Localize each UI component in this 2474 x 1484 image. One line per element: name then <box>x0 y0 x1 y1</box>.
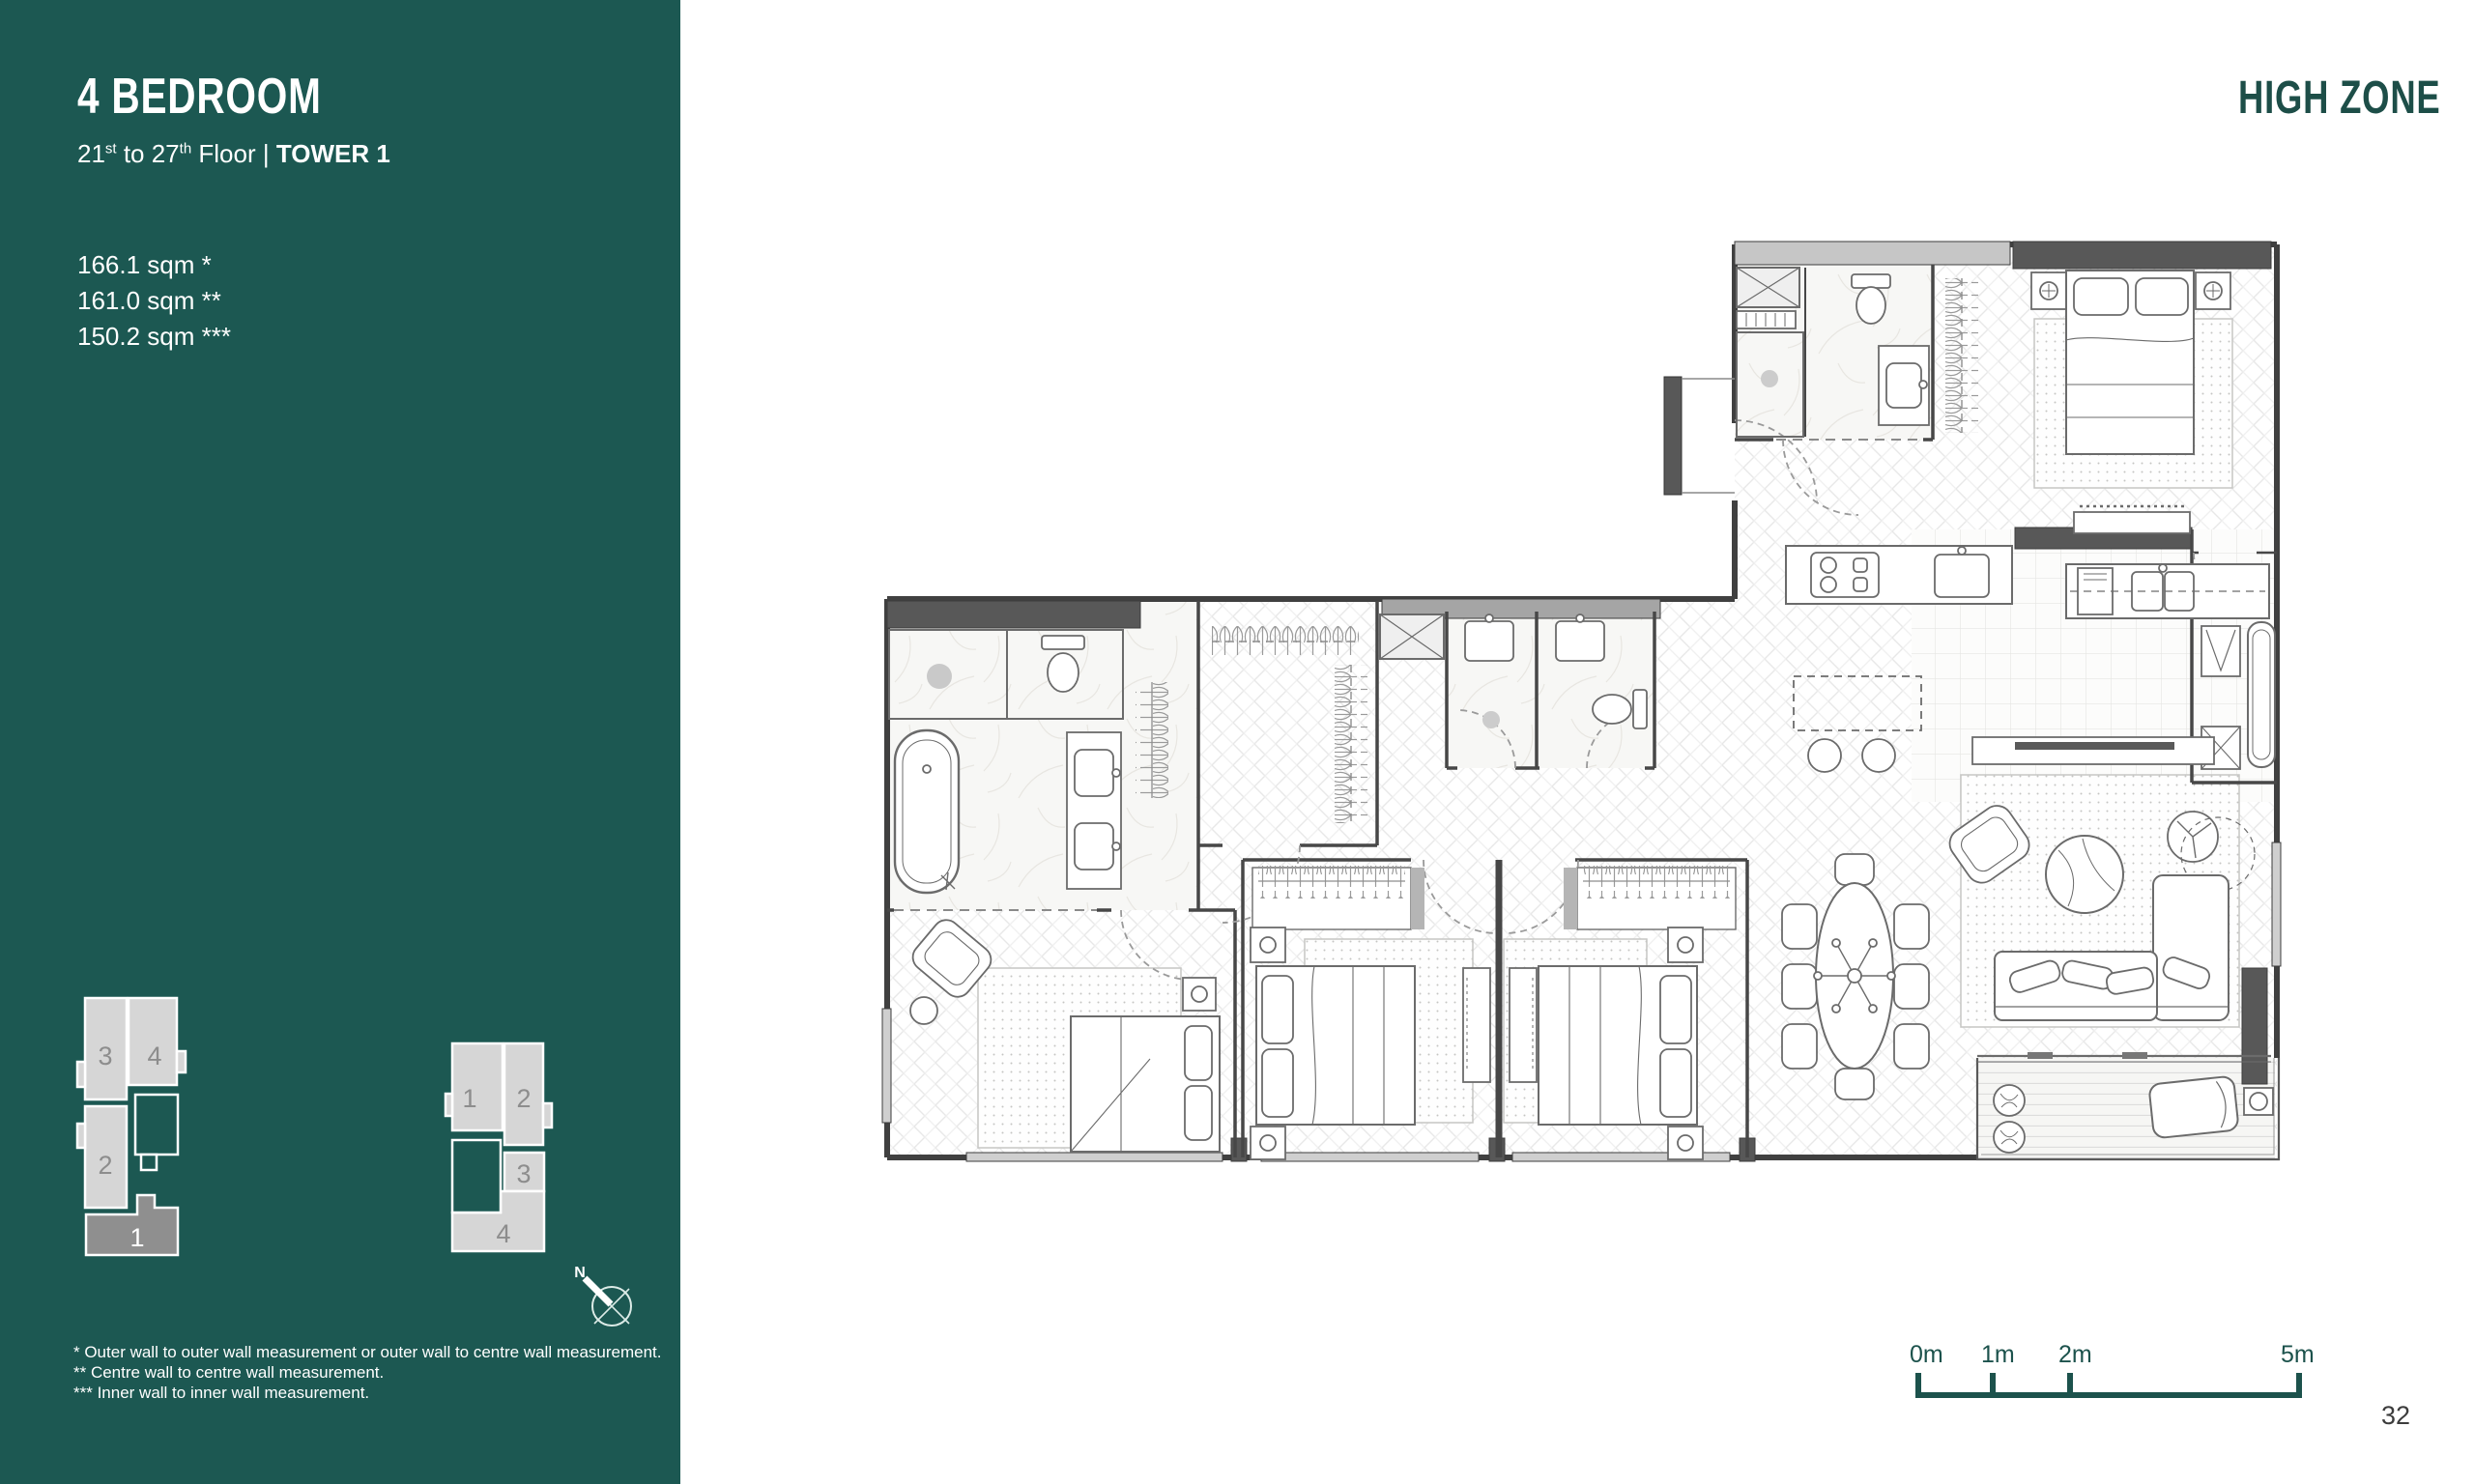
dining-chair <box>1894 904 1929 949</box>
wall-band-kitchen <box>2015 528 2192 549</box>
footnote-3: *** Inner wall to inner wall measurement… <box>73 1383 661 1403</box>
toilet-b-tank <box>1633 690 1647 728</box>
nightstand <box>1668 1127 1703 1159</box>
toilet-bowl <box>1048 653 1079 692</box>
rugs <box>978 319 2239 1148</box>
fridge <box>2078 568 2113 614</box>
entry-wall-stub <box>1664 377 1682 495</box>
sidebar-panel <box>0 0 680 1484</box>
planter <box>1994 1122 2025 1153</box>
dresser-2 <box>1463 968 1490 1082</box>
bedroom-3 <box>1510 866 1736 1159</box>
outer-walls <box>887 244 2277 1157</box>
master-toilet-bowl <box>1856 287 1885 324</box>
armchair <box>907 915 996 1003</box>
sofa-pillow <box>2008 958 2062 994</box>
window-living <box>2272 842 2281 966</box>
toilet-b-bowl <box>1593 695 1631 724</box>
bedroom1-door-arc <box>1121 910 1191 980</box>
kitchen-floor <box>1912 529 2277 802</box>
nightstand <box>2031 272 2066 309</box>
area-inner: 150.2 sqm *** <box>77 319 231 355</box>
closet-door-arc <box>1223 845 1300 923</box>
window-bedroom1-side <box>882 1009 891 1123</box>
bench <box>2074 512 2190 533</box>
sink-right <box>2165 572 2194 611</box>
utility-room <box>2201 622 2275 769</box>
scale-baseline <box>1915 1392 2302 1398</box>
wall-band-light-top <box>1735 242 2010 265</box>
bedroom3-door-arc <box>1505 860 1578 933</box>
measurement-footnotes: * Outer wall to outer wall measurement o… <box>73 1342 661 1403</box>
master-vanity <box>1879 346 1929 425</box>
sliding-doors <box>894 440 1921 910</box>
nightstand <box>2196 272 2230 309</box>
footnote-2: ** Centre wall to centre wall measuremen… <box>73 1362 661 1383</box>
master-bath-floor <box>1735 265 1933 440</box>
tower-label: TOWER 1 <box>276 139 390 168</box>
dining-chair <box>1782 964 1817 1009</box>
bedroom2-rug <box>1305 939 1473 1123</box>
master-shower <box>1737 332 1803 437</box>
ordinal-th: th <box>180 140 192 157</box>
kitchen-island <box>1786 546 2012 604</box>
wall-band-dark-top <box>2013 242 2271 269</box>
window-bedroom3 <box>1512 1153 1730 1161</box>
tv-console <box>1972 737 2214 764</box>
cabinet <box>2201 626 2240 676</box>
ordinal-st: st <box>105 140 117 157</box>
bar-stool <box>1862 739 1895 772</box>
master-shaft <box>1737 268 1799 307</box>
planter <box>1994 1085 2025 1116</box>
wall-stub-1 <box>1231 1138 1247 1161</box>
island-sink <box>1935 555 1989 597</box>
living-room-rug <box>1961 775 2239 1027</box>
page-number: 32 <box>2381 1401 2410 1431</box>
floor-left-wing <box>884 599 1735 1159</box>
scale-tick-1m <box>1990 1373 1996 1394</box>
bedroom2-door-arc <box>1424 860 1497 933</box>
drain-a <box>1482 711 1500 728</box>
wardrobe-2 <box>1252 868 1411 929</box>
bed-1 <box>1071 1016 1220 1152</box>
sofa-pillow <box>2060 959 2114 990</box>
bathB-door-arc <box>1587 710 1645 768</box>
bar-stool <box>1808 739 1841 772</box>
dresser-3 <box>1510 968 1537 1082</box>
bathA-door-arc <box>1457 710 1515 768</box>
interior-walls <box>887 265 2277 1157</box>
balcony-railing-inner <box>1981 1058 2274 1155</box>
window-bedroom2 <box>1261 1153 1479 1161</box>
dining-chair <box>1894 964 1929 1009</box>
scale-tick-5m <box>2296 1373 2302 1394</box>
bath-b <box>1556 614 1647 728</box>
master-bed <box>2066 271 2194 454</box>
bath1-floor <box>887 601 1198 910</box>
closet-rack-top <box>1212 626 1359 659</box>
area-centre: 161.0 sqm ** <box>77 283 231 319</box>
sink-a <box>1465 621 1513 661</box>
floor-mid: to 27 <box>117 139 180 168</box>
pillow <box>1185 1026 1212 1080</box>
entry-threshold <box>1682 379 1735 493</box>
side-table <box>910 997 937 1024</box>
bedroom-1 <box>907 915 1220 1152</box>
shower-drain <box>927 664 952 689</box>
dining-table <box>1816 883 1893 1069</box>
toilet-tank <box>1042 636 1084 649</box>
page-title: 4 BEDROOM <box>77 68 322 126</box>
bed-3 <box>1539 966 1697 1125</box>
master-bedroom <box>2031 271 2230 533</box>
balcony-floor <box>1977 1058 2275 1159</box>
door-arcs <box>1121 420 2252 980</box>
pillow <box>2074 278 2128 315</box>
bathtub <box>895 730 959 893</box>
master-bathroom <box>1737 268 1978 437</box>
nightstand <box>1668 927 1703 962</box>
utility-door-arc <box>2194 553 2252 611</box>
window-bedroom1 <box>966 1153 1223 1161</box>
nightstand <box>1183 978 1216 1011</box>
dining-chair <box>1835 1069 1874 1099</box>
area-measurements: 166.1 sqm * 161.0 sqm ** 150.2 sqm *** <box>77 247 231 355</box>
coffee-table <box>2046 836 2123 913</box>
baths-floor <box>1447 612 1654 768</box>
wall-stub-2 <box>1489 1138 1505 1161</box>
bath1-rack <box>1136 682 1168 798</box>
wall-band-bath1 <box>887 601 1140 628</box>
floor-tower-subtitle: 21st to 27th Floor | TOWER 1 <box>77 139 390 169</box>
dining-chair <box>1782 1024 1817 1069</box>
bedroom1-rug <box>978 968 1181 1148</box>
cooktop <box>1811 553 1879 597</box>
bed-2 <box>1256 966 1415 1125</box>
pillow <box>2136 278 2188 315</box>
sink-left <box>2132 572 2163 611</box>
wall-stub-3 <box>1740 1138 1755 1161</box>
bedroom3-rug <box>1504 939 1647 1123</box>
zone-label: HIGH ZONE <box>2238 71 2441 125</box>
nightstand <box>1251 927 1285 962</box>
pillow <box>1262 976 1293 1043</box>
brochure-page: 4 BEDROOM 21st to 27th Floor | TOWER 1 1… <box>0 0 2474 1484</box>
area-outer: 166.1 sqm * <box>77 247 231 283</box>
sofa-pillow <box>2161 956 2212 991</box>
scale-bar: 0m 1m 2m 5m <box>1910 1341 2315 1398</box>
wall-pillar-living <box>2242 968 2267 1084</box>
scale-tick-2m <box>2067 1373 2073 1394</box>
dining-area <box>1782 854 1929 1099</box>
floor-plan <box>882 242 2281 1161</box>
floor-right-wing <box>1735 242 2277 1159</box>
ac-unit <box>2244 1088 2273 1115</box>
scale-label-5m: 5m <box>2281 1341 2315 1368</box>
master-toilet-tank <box>1852 274 1890 288</box>
nightstand <box>1251 1127 1285 1159</box>
floor-start: 21 <box>77 139 105 168</box>
pillow <box>1185 1086 1212 1140</box>
master-closet-unit <box>1737 311 1796 328</box>
master-wardrobe-rack <box>1945 278 1978 433</box>
sofa-seat <box>1995 952 2157 1020</box>
wardrobe-3 <box>1577 868 1736 929</box>
sofa-chaise <box>2153 875 2229 1020</box>
counter-overhang <box>1794 676 1921 730</box>
bath-a <box>1465 614 1513 728</box>
kitchen-counter <box>2066 564 2269 618</box>
dining-chair <box>1835 854 1874 885</box>
side-table-plant <box>2168 812 2218 862</box>
floor-tail: Floor | <box>191 139 276 168</box>
scale-tick-0m <box>1915 1373 1921 1394</box>
utility-tub <box>2248 622 2275 767</box>
balcony <box>1977 1052 2271 1153</box>
sofa-pillow <box>2105 966 2154 995</box>
scale-label-1m: 1m <box>1981 1341 2015 1368</box>
entry-door-arc <box>1735 420 1817 502</box>
living-armchair <box>1943 800 2035 889</box>
closet-rack-side <box>1335 665 1367 823</box>
balcony-railing <box>1977 1058 2279 1159</box>
footnote-1: * Outer wall to outer wall measurement o… <box>73 1342 661 1362</box>
wall-band-baths <box>1382 599 1660 618</box>
kitchen <box>1786 546 2269 772</box>
tv <box>2015 742 2174 750</box>
fixtures <box>889 268 2275 1159</box>
shaft <box>1380 614 1444 659</box>
tub-faucet <box>941 872 955 890</box>
dining-chair <box>1782 904 1817 949</box>
pillow <box>1262 1049 1293 1117</box>
master-bedroom-rug <box>2034 319 2232 488</box>
walk-in-closet <box>1212 614 1444 823</box>
lounge-chair <box>2148 1076 2238 1139</box>
hall-door-arc <box>1783 440 1858 515</box>
scale-label-2m: 2m <box>2058 1341 2092 1368</box>
pillow <box>1660 976 1691 1043</box>
dining-chair <box>1894 1024 1929 1069</box>
pillow <box>1660 1049 1691 1117</box>
washer <box>2201 727 2240 769</box>
living-room <box>1943 737 2273 1115</box>
double-vanity <box>1067 732 1121 889</box>
sink-b <box>1556 621 1604 661</box>
wall-bands <box>882 242 2281 1161</box>
scale-label-0m: 0m <box>1910 1341 1943 1368</box>
bedroom-2 <box>1251 866 1490 1159</box>
bathroom-1 <box>889 630 1123 893</box>
